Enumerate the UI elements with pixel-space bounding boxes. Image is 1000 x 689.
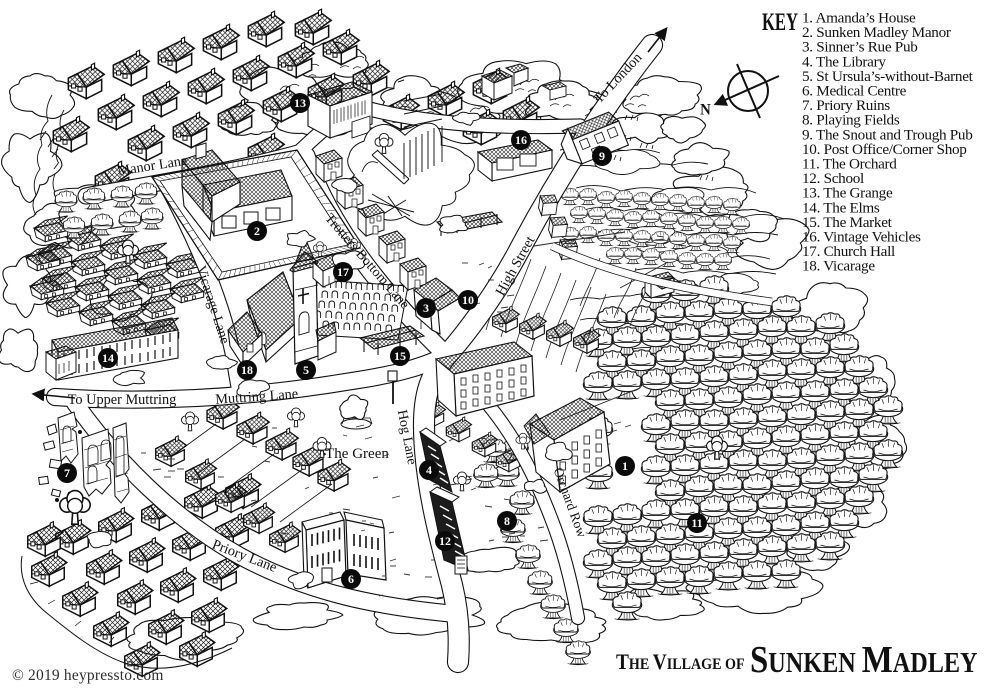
svg-text:9: 9 xyxy=(599,149,605,163)
svg-text:16: 16 xyxy=(515,133,527,147)
svg-text:8: 8 xyxy=(504,514,510,528)
svg-text:To Upper Muttring: To Upper Muttring xyxy=(68,392,177,408)
svg-text:© 2019 heypressto.com: © 2019 heypressto.com xyxy=(12,667,164,684)
svg-text:N: N xyxy=(700,101,711,119)
svg-text:17: 17 xyxy=(337,265,349,279)
svg-text:5: 5 xyxy=(303,363,309,377)
svg-text:12: 12 xyxy=(439,534,451,548)
svg-text:KEY: KEY xyxy=(762,9,798,36)
svg-text:The Green: The Green xyxy=(325,446,389,462)
svg-text:6: 6 xyxy=(348,572,354,586)
svg-text:2: 2 xyxy=(254,224,260,238)
svg-text:4: 4 xyxy=(426,463,432,477)
svg-text:1: 1 xyxy=(622,459,628,473)
svg-text:3: 3 xyxy=(423,301,429,315)
svg-text:11: 11 xyxy=(691,516,702,530)
svg-text:13: 13 xyxy=(294,96,306,110)
svg-text:18: 18 xyxy=(241,363,253,377)
svg-text:7: 7 xyxy=(64,466,70,480)
svg-text:10: 10 xyxy=(462,293,474,307)
svg-text:15: 15 xyxy=(394,349,406,363)
svg-text:18. Vicarage: 18. Vicarage xyxy=(802,258,875,275)
svg-text:14: 14 xyxy=(102,351,114,365)
